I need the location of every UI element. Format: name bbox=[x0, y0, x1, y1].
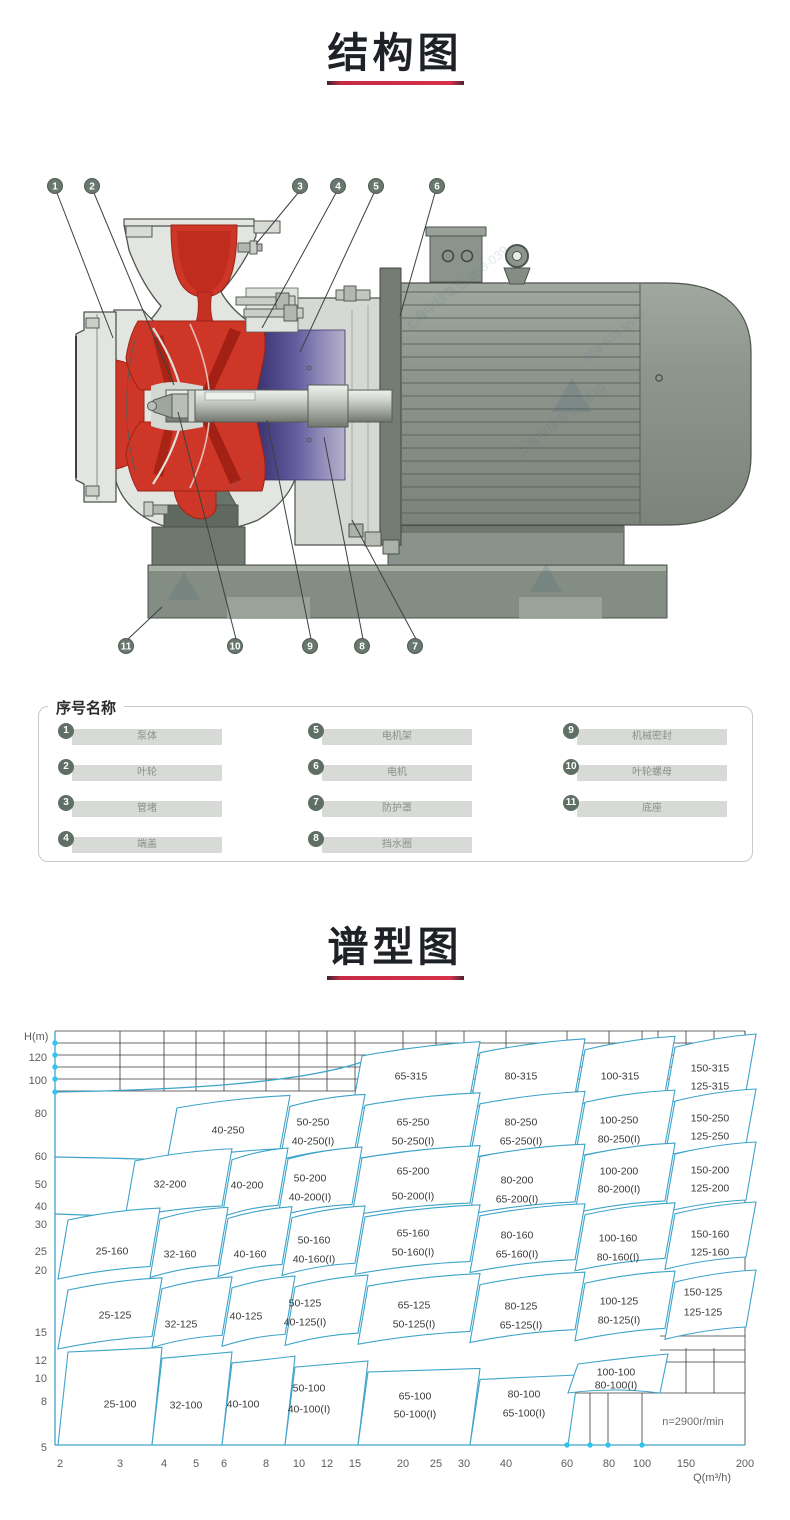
svg-text:80-250: 80-250 bbox=[505, 1117, 538, 1129]
svg-text:50-125: 50-125 bbox=[289, 1298, 322, 1310]
svg-text:40-250(I): 40-250(I) bbox=[292, 1136, 335, 1148]
svg-text:80-100: 80-100 bbox=[508, 1389, 541, 1401]
svg-text:65-250(I): 65-250(I) bbox=[500, 1136, 543, 1148]
svg-text:25-160: 25-160 bbox=[96, 1246, 129, 1258]
svg-text:32-160: 32-160 bbox=[164, 1249, 197, 1261]
svg-text:50-125(I): 50-125(I) bbox=[393, 1319, 436, 1331]
svg-text:150-125: 150-125 bbox=[684, 1287, 723, 1299]
svg-text:4: 4 bbox=[161, 1458, 167, 1470]
svg-text:40-250: 40-250 bbox=[212, 1125, 245, 1137]
svg-text:100: 100 bbox=[29, 1075, 47, 1087]
svg-text:150-250: 150-250 bbox=[691, 1113, 730, 1125]
svg-text:5: 5 bbox=[373, 182, 379, 193]
svg-text:10: 10 bbox=[293, 1458, 305, 1470]
svg-text:7: 7 bbox=[412, 642, 418, 653]
svg-text:80-250(I): 80-250(I) bbox=[598, 1134, 641, 1146]
svg-text:12: 12 bbox=[35, 1355, 47, 1367]
svg-text:H(m): H(m) bbox=[24, 1031, 48, 1043]
svg-text:150-315: 150-315 bbox=[691, 1063, 730, 1075]
svg-text:15: 15 bbox=[349, 1458, 361, 1470]
svg-text:125-125: 125-125 bbox=[684, 1307, 723, 1319]
svg-text:125-315: 125-315 bbox=[691, 1081, 730, 1093]
svg-text:100-100: 100-100 bbox=[597, 1367, 636, 1379]
svg-text:5: 5 bbox=[193, 1458, 199, 1470]
svg-text:2: 2 bbox=[57, 1458, 63, 1470]
svg-text:8: 8 bbox=[359, 642, 365, 653]
svg-text:60: 60 bbox=[561, 1458, 573, 1470]
svg-text:50: 50 bbox=[35, 1179, 47, 1191]
svg-text:100-315: 100-315 bbox=[601, 1071, 640, 1083]
svg-text:30: 30 bbox=[458, 1458, 470, 1470]
svg-text:n=2900r/min: n=2900r/min bbox=[662, 1416, 723, 1428]
svg-text:65-315: 65-315 bbox=[395, 1071, 428, 1083]
svg-text:5: 5 bbox=[41, 1442, 47, 1454]
svg-text:25-100: 25-100 bbox=[104, 1399, 137, 1411]
svg-text:100-250: 100-250 bbox=[600, 1115, 639, 1127]
svg-text:80-125(I): 80-125(I) bbox=[598, 1315, 641, 1327]
svg-text:100-200: 100-200 bbox=[600, 1166, 639, 1178]
svg-text:32-200: 32-200 bbox=[154, 1179, 187, 1191]
svg-text:60: 60 bbox=[35, 1151, 47, 1163]
svg-text:150-160: 150-160 bbox=[691, 1229, 730, 1241]
svg-text:120: 120 bbox=[29, 1052, 47, 1064]
svg-text:30: 30 bbox=[35, 1219, 47, 1231]
svg-text:50-100: 50-100 bbox=[293, 1383, 326, 1395]
svg-text:65-250: 65-250 bbox=[397, 1117, 430, 1129]
svg-text:100: 100 bbox=[633, 1458, 651, 1470]
svg-text:50-160(I): 50-160(I) bbox=[392, 1247, 435, 1259]
svg-text:25: 25 bbox=[430, 1458, 442, 1470]
svg-text:80-125: 80-125 bbox=[505, 1301, 538, 1313]
svg-text:8: 8 bbox=[41, 1396, 47, 1408]
svg-text:150: 150 bbox=[677, 1458, 695, 1470]
svg-text:40-100: 40-100 bbox=[227, 1399, 260, 1411]
svg-text:6: 6 bbox=[221, 1458, 227, 1470]
svg-text:32-100: 32-100 bbox=[170, 1400, 203, 1412]
svg-text:40-160: 40-160 bbox=[234, 1249, 267, 1261]
svg-text:2: 2 bbox=[89, 182, 95, 193]
svg-text:3: 3 bbox=[117, 1458, 123, 1470]
svg-text:11: 11 bbox=[121, 642, 132, 653]
svg-text:80-160: 80-160 bbox=[501, 1230, 534, 1242]
svg-text:50-200: 50-200 bbox=[294, 1173, 327, 1185]
svg-text:125-160: 125-160 bbox=[691, 1247, 730, 1259]
svg-text:50-250(I): 50-250(I) bbox=[392, 1136, 435, 1148]
svg-text:150-200: 150-200 bbox=[691, 1165, 730, 1177]
svg-text:9: 9 bbox=[307, 642, 313, 653]
svg-text:65-160(I): 65-160(I) bbox=[496, 1249, 539, 1261]
svg-text:3: 3 bbox=[297, 182, 303, 193]
svg-text:1: 1 bbox=[52, 182, 58, 193]
svg-text:4: 4 bbox=[335, 182, 341, 193]
svg-text:80-200(I): 80-200(I) bbox=[598, 1184, 641, 1196]
svg-text:100-160: 100-160 bbox=[599, 1233, 638, 1245]
svg-text:20: 20 bbox=[35, 1265, 47, 1277]
svg-text:80-160(I): 80-160(I) bbox=[597, 1252, 640, 1264]
svg-text:10: 10 bbox=[229, 642, 241, 653]
svg-text:40-160(I): 40-160(I) bbox=[293, 1254, 336, 1266]
svg-text:65-200(I): 65-200(I) bbox=[496, 1194, 539, 1206]
svg-text:40-125: 40-125 bbox=[230, 1311, 263, 1323]
svg-text:80: 80 bbox=[35, 1108, 47, 1120]
svg-text:80-100(I): 80-100(I) bbox=[595, 1380, 638, 1392]
svg-text:65-125: 65-125 bbox=[398, 1300, 431, 1312]
svg-text:8: 8 bbox=[263, 1458, 269, 1470]
svg-text:32-125: 32-125 bbox=[165, 1319, 198, 1331]
svg-text:80-200: 80-200 bbox=[501, 1175, 534, 1187]
svg-text:65-160: 65-160 bbox=[397, 1228, 430, 1240]
svg-text:50-200(I): 50-200(I) bbox=[392, 1191, 435, 1203]
svg-text:40: 40 bbox=[35, 1201, 47, 1213]
svg-text:15: 15 bbox=[35, 1327, 47, 1339]
svg-text:25: 25 bbox=[35, 1246, 47, 1258]
svg-text:80: 80 bbox=[603, 1458, 615, 1470]
svg-text:125-200: 125-200 bbox=[691, 1183, 730, 1195]
svg-text:25-125: 25-125 bbox=[99, 1310, 132, 1322]
svg-text:65-200: 65-200 bbox=[397, 1166, 430, 1178]
svg-text:50-160: 50-160 bbox=[298, 1235, 331, 1247]
svg-text:12: 12 bbox=[321, 1458, 333, 1470]
svg-text:50-250: 50-250 bbox=[297, 1117, 330, 1129]
svg-text:40-100(I): 40-100(I) bbox=[288, 1404, 331, 1416]
svg-text:65-125(I): 65-125(I) bbox=[500, 1320, 543, 1332]
svg-text:10: 10 bbox=[35, 1373, 47, 1385]
svg-text:80-315: 80-315 bbox=[505, 1071, 538, 1083]
svg-text:65-100(I): 65-100(I) bbox=[503, 1408, 546, 1420]
svg-text:40-125(I): 40-125(I) bbox=[284, 1317, 327, 1329]
svg-text:Q(m³/h): Q(m³/h) bbox=[693, 1472, 731, 1484]
svg-text:200: 200 bbox=[736, 1458, 754, 1470]
svg-text:6: 6 bbox=[434, 182, 440, 193]
svg-text:40-200: 40-200 bbox=[231, 1180, 264, 1192]
svg-text:40: 40 bbox=[500, 1458, 512, 1470]
svg-text:40-200(I): 40-200(I) bbox=[289, 1192, 332, 1204]
svg-text:125-250: 125-250 bbox=[691, 1131, 730, 1143]
svg-text:100-125: 100-125 bbox=[600, 1296, 639, 1308]
svg-text:20: 20 bbox=[397, 1458, 409, 1470]
svg-text:50-100(I): 50-100(I) bbox=[394, 1409, 437, 1421]
svg-text:65-100: 65-100 bbox=[399, 1391, 432, 1403]
